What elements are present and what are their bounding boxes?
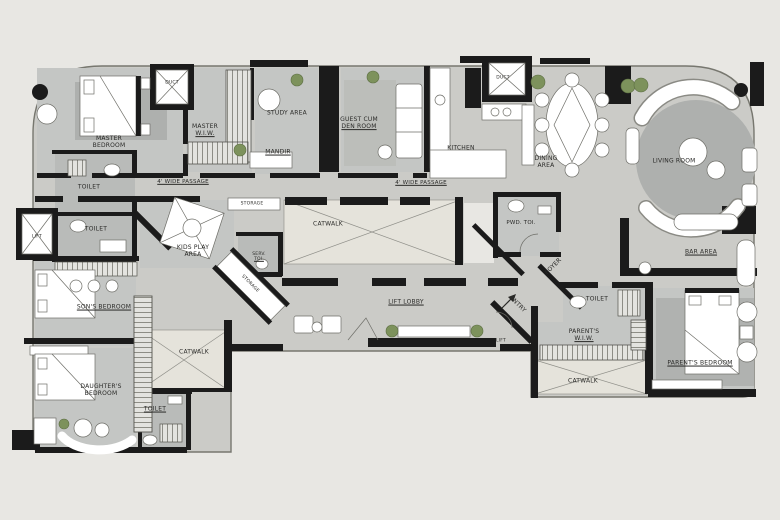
- toilet2-vanity: [100, 240, 126, 252]
- lobby-plant-2: [471, 325, 483, 337]
- lobby-bench: [398, 326, 470, 337]
- mandir-platform: [250, 152, 292, 168]
- duct-left-shaft: [150, 64, 194, 110]
- bar-stool: [639, 262, 651, 274]
- toilet2-floor: [55, 214, 137, 260]
- guest-sofa: [396, 84, 422, 158]
- lift-left-shaft: [16, 208, 58, 260]
- kids-shelf-band: [134, 296, 152, 432]
- master-bed: [80, 76, 150, 136]
- dining-console: [522, 105, 534, 165]
- daughters-bed: [35, 354, 95, 400]
- daughters-table-2: [95, 423, 109, 437]
- storage-top-unit: [228, 198, 280, 210]
- serv-toi-wc: [256, 259, 268, 269]
- guest-plant: [367, 71, 379, 83]
- living-coffee-table-1: [679, 138, 707, 166]
- pwd-toi-floor: [497, 194, 559, 256]
- catwalk-bl-zone: [140, 330, 228, 390]
- toilet1-wc: [104, 164, 120, 176]
- sons-bed: [35, 270, 95, 318]
- bar-chaise: [737, 240, 755, 286]
- toilet1-floor: [55, 152, 135, 214]
- parents-wiw-wardrobe-right: [631, 320, 646, 350]
- catwalk-mid-zone: [284, 200, 460, 264]
- parents-bed: [685, 288, 739, 374]
- daughters-table-1: [74, 419, 92, 437]
- study-table: [258, 89, 280, 111]
- sons-stool-1: [70, 280, 82, 292]
- parents-wc: [570, 296, 586, 308]
- daughters-wc: [143, 435, 157, 445]
- living-coffee-table-2: [707, 161, 725, 179]
- daughters-plant: [59, 419, 69, 429]
- sons-stool-2: [88, 280, 100, 292]
- daughters-basin: [168, 396, 182, 404]
- floor-plan-drawing: [0, 0, 780, 520]
- floor-plan: DUCTMASTERBEDROOMMASTERW.I.W.STUDY AREAM…: [0, 0, 780, 520]
- toilet2-wc: [70, 220, 86, 232]
- daughters-desk: [34, 418, 56, 444]
- living-plant-1: [634, 78, 648, 92]
- catwalk-br-zone: [535, 360, 647, 394]
- lobby-plant-1: [386, 325, 398, 337]
- guest-pouf: [378, 145, 392, 159]
- media-console: [30, 346, 88, 355]
- parents-chair-1: [737, 302, 757, 322]
- study-plant: [291, 74, 303, 86]
- master-armchair: [37, 104, 57, 124]
- duct-top-shaft: [482, 56, 532, 102]
- parents-wiw-wardrobe-bottom: [540, 345, 644, 360]
- pwd-toi-basin: [538, 206, 551, 214]
- parents-side-table: [740, 326, 753, 339]
- daughters-shower: [160, 424, 182, 442]
- dining-plant-2: [621, 79, 635, 93]
- parents-chair-2: [737, 342, 757, 362]
- mandir-plant: [234, 144, 246, 156]
- master-plant-pot: [32, 84, 48, 100]
- dining-plant-1: [531, 75, 545, 89]
- parents-shower: [618, 290, 640, 316]
- bar-counter: [674, 214, 738, 230]
- parents-bench: [652, 380, 722, 389]
- toilet1-shower: [68, 160, 86, 176]
- pwd-toi-wc: [508, 200, 524, 212]
- sons-stool-3: [106, 280, 118, 292]
